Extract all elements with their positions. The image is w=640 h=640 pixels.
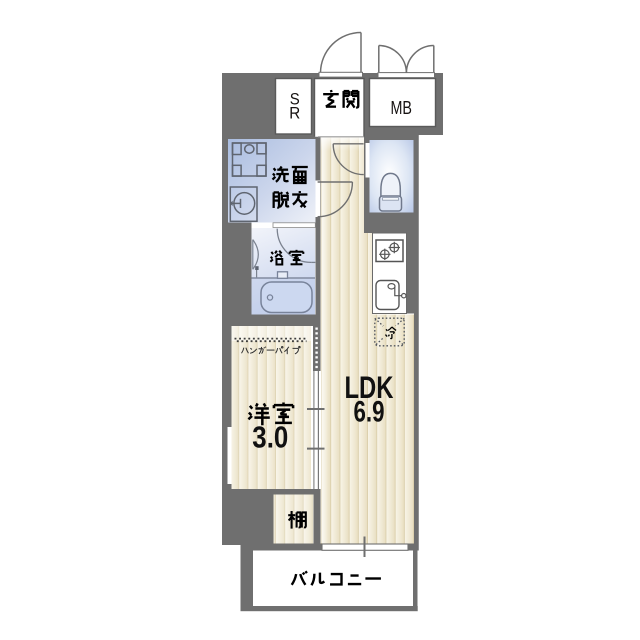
svg-text:R: R [289,104,300,123]
svg-text:6.9: 6.9 [354,396,385,429]
svg-text:MB: MB [390,98,412,118]
svg-text:3.0: 3.0 [252,420,288,455]
